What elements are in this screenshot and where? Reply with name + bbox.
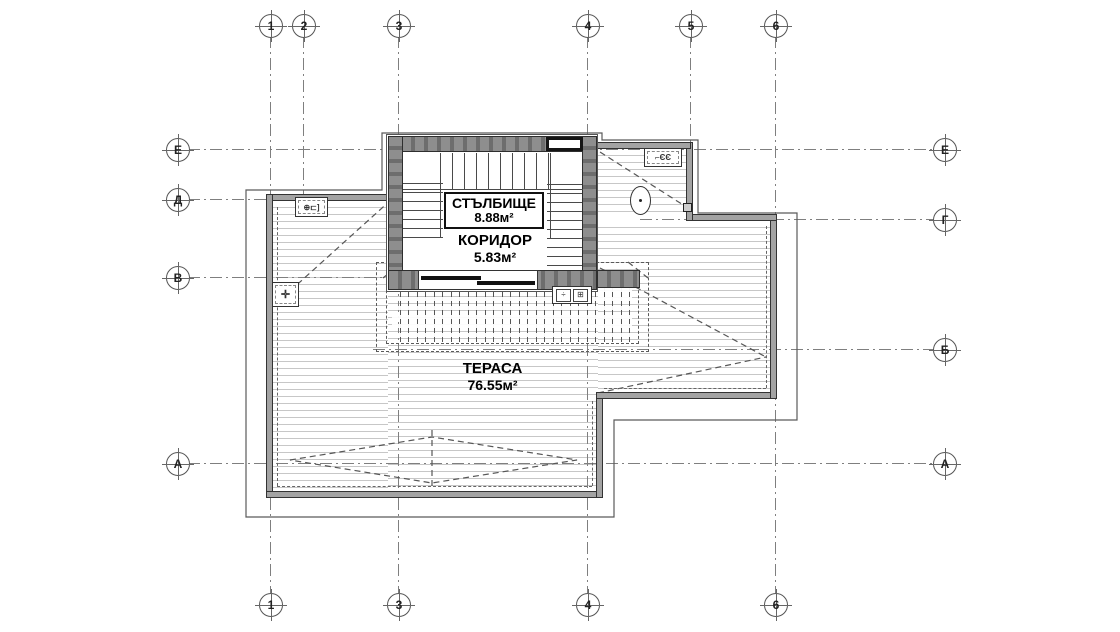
- staircase-name: СТЪЛБИЩЕ: [452, 196, 536, 211]
- grid-label: Е: [941, 143, 949, 157]
- corner-junction-icon: [683, 203, 692, 212]
- grid-label: Г: [942, 213, 949, 227]
- stair-landing-line: [403, 189, 583, 190]
- grid-bubble-right-B: Б: [933, 338, 957, 362]
- grid-bubble-top-5: 5: [679, 14, 703, 38]
- grid-bubble-right-G: Г: [933, 208, 957, 232]
- grid-label: А: [941, 457, 950, 471]
- grid-label: Б: [941, 343, 950, 357]
- corridor-window-opening: [418, 270, 538, 290]
- terrace-name: ТЕРАСА: [463, 360, 523, 377]
- grid-label: Д: [174, 193, 183, 207]
- staircase-area: 8.88м²: [474, 211, 513, 225]
- corridor-area: 5.83м²: [474, 249, 516, 265]
- grid-bubble-left-D: Д: [166, 188, 190, 212]
- stair-stringer-line: [440, 153, 441, 238]
- skylight-glyph: ⌐ЄЄ: [655, 153, 671, 162]
- grid-label: 3: [396, 598, 403, 612]
- grid-label: 2: [301, 19, 308, 33]
- stair-stringer-line: [550, 153, 551, 238]
- fixture-glyph: ÷: [556, 289, 571, 302]
- grid-bubble-top-2: 2: [292, 14, 316, 38]
- terrace-edge-step-left: [596, 392, 603, 498]
- parapet-railing: [592, 401, 593, 486]
- corridor-name: КОРИДОР: [458, 232, 532, 249]
- grid-bubble-bottom-4: 4: [576, 593, 600, 617]
- stair-wall-left: [388, 136, 403, 290]
- drain-glyph: ✛: [281, 288, 290, 301]
- drain-diamond: [290, 437, 577, 483]
- grid-bubble-bottom-1: 1: [259, 593, 283, 617]
- grid-bubble-left-A: А: [166, 452, 190, 476]
- grid-label: А: [174, 457, 183, 471]
- grid-bubble-top-3: 3: [387, 14, 411, 38]
- staircase-label-box: СТЪЛБИЩЕ 8.88м²: [444, 192, 544, 229]
- stair-wall-right: [582, 136, 597, 290]
- grid-label: Е: [174, 143, 182, 157]
- terrace-edge-left: [266, 194, 273, 498]
- canopy-beam-grid: [392, 284, 632, 342]
- grid-bubble-bottom-6: 6: [764, 593, 788, 617]
- floor-plan-canvas: 1 2 3 4 5 6 1 3 4 6 Е Д В А Е Г Б А: [0, 0, 1120, 632]
- skylight-icon: ⌐ЄЄ: [644, 148, 682, 167]
- grid-bubble-left-V: В: [166, 266, 190, 290]
- vent-box-icon: ⊕⊏]: [295, 197, 328, 217]
- fixture-glyph: ⊞: [573, 289, 588, 302]
- grid-bubble-top-6: 6: [764, 14, 788, 38]
- grid-bubble-top-1: 1: [259, 14, 283, 38]
- corridor-label: КОРИДОР 5.83м²: [425, 232, 565, 265]
- grid-bubble-right-E: Е: [933, 138, 957, 162]
- grid-label: 1: [268, 598, 275, 612]
- wall-stub-right: [597, 270, 640, 288]
- terrace-edge-right: [770, 214, 777, 399]
- terrace-area: 76.55м²: [467, 377, 517, 393]
- terrace-label: ТЕРАСА 76.55м²: [430, 360, 555, 393]
- grid-label: В: [174, 271, 183, 285]
- parapet-railing: [277, 207, 278, 486]
- terrace-edge-bottom: [266, 491, 603, 498]
- parapet-railing: [766, 226, 767, 388]
- parapet-railing: [604, 388, 766, 389]
- stair-top-window: [546, 137, 583, 151]
- grid-label: 6: [773, 598, 780, 612]
- grid-bubble-bottom-3: 3: [387, 593, 411, 617]
- grid-label: 4: [585, 19, 592, 33]
- grid-label: 4: [585, 598, 592, 612]
- terrace-edge-top-left: [270, 194, 390, 201]
- vent-glyph: ⊕⊏]: [303, 203, 319, 212]
- terrace-edge-step-top: [686, 214, 777, 221]
- parapet-railing: [277, 486, 592, 487]
- grid-label: 6: [773, 19, 780, 33]
- stair-flight-left-treads: [403, 177, 443, 238]
- corridor-window-sash: [477, 281, 535, 285]
- grid-label: 5: [688, 19, 695, 33]
- grid-bubble-top-4: 4: [576, 14, 600, 38]
- grid-label: 3: [396, 19, 403, 33]
- roof-fixture-icon: ÷ ⊞: [552, 286, 592, 304]
- terrace-edge-step-bottom: [596, 392, 777, 399]
- grid-bubble-right-A: А: [933, 452, 957, 476]
- roof-drain-icon: ✛: [272, 282, 299, 307]
- vent-pipe-icon: [630, 186, 651, 215]
- stair-flight-top-treads: [440, 153, 551, 189]
- corridor-window-sash: [421, 276, 481, 280]
- grid-label: 1: [268, 19, 275, 33]
- grid-bubble-left-E: Е: [166, 138, 190, 162]
